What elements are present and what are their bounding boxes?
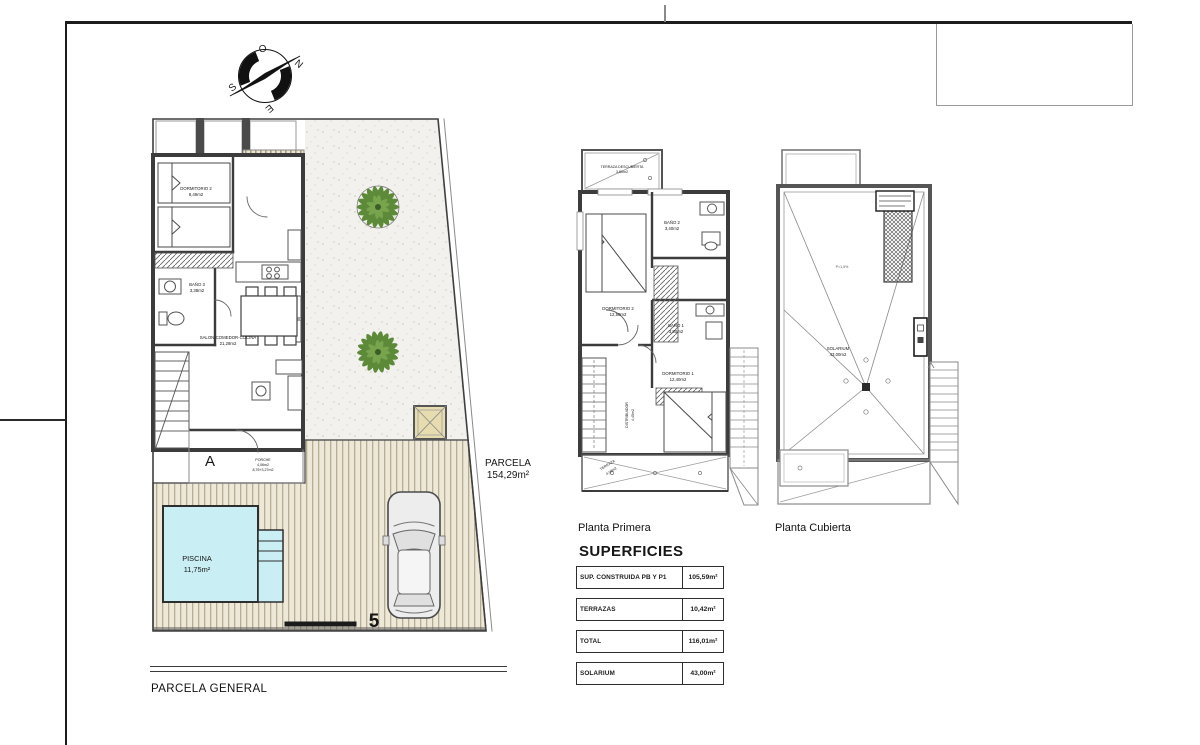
ground-floor-plan: DORMITORIO 2 8,49m2 BAÑO 3 3,38m2 SALON-… [153, 118, 531, 632]
room-area: 21,28m2 [220, 341, 237, 346]
pool-steps [258, 530, 283, 602]
superficies-row: SUP. CONSTRUIDA PB Y P1 105,59m² [576, 566, 724, 589]
room-label: BAÑO 3 [189, 282, 205, 287]
room-area: 43,00m2 [830, 352, 847, 357]
superficies-row-label: TOTAL [577, 631, 683, 652]
room-label: DORMITORIO 2 [602, 306, 634, 311]
compass-west-label: O [258, 43, 269, 56]
planta-primera-caption: Planta Primera [578, 522, 651, 534]
superficies-row-value: 116,01m² [683, 631, 723, 652]
parcela-general-caption: PARCELA GENERAL [151, 683, 267, 695]
compass-rose: O N S E [227, 43, 305, 115]
parcela-divider-line [150, 666, 507, 672]
street-terrace-slots [156, 121, 296, 154]
room-area: 8,49m2 [189, 192, 204, 197]
compass-east-label: E [263, 102, 275, 115]
p1-terraza [582, 455, 728, 491]
superficies-row-value: 10,42m² [683, 599, 723, 620]
room-label: DORMITORIO 1 [662, 371, 694, 376]
superficies-row: TOTAL 116,01m² [576, 630, 724, 653]
room-area: 4,06m2 [257, 463, 269, 467]
architectural-drawing-sheet: O N S E [0, 0, 1200, 745]
room-label: DORMITORIO 2 [180, 186, 212, 191]
superficies-row-label: TERRAZAS [577, 599, 683, 620]
superficies-row-label: SOLARIUM [577, 663, 683, 684]
parcela-label: PARCELA [485, 458, 531, 469]
room-label: TERRAZA DESCUBIERTA [601, 165, 644, 169]
room-area: 3,60m2 [616, 170, 628, 174]
room-label: PORCHE [255, 458, 271, 462]
roof-side-stair [928, 362, 958, 504]
roof-slope-note: P=1,5% [836, 265, 849, 269]
room-area-detail: 8,76+3,27m2 [252, 468, 273, 472]
room-area: 4,45m2 [631, 409, 635, 421]
superficies-row-label: SUP. CONSTRUIDA PB Y P1 [577, 567, 683, 588]
room-area: 3,40m2 [665, 226, 680, 231]
stairs-ground [155, 352, 189, 448]
superficies-title: SUPERFICIES [579, 543, 683, 560]
planta-primera-plan: TERRAZA DESCUBIERTA 3,60m2 DORMITORIO 2 … [577, 150, 758, 505]
p1-stairs [582, 358, 606, 452]
room-label: BAÑO 1 [668, 323, 684, 328]
superficies-row-value: 43,00m² [683, 663, 723, 684]
room-label: SOLARIUM [827, 346, 850, 351]
superficies-row: TERRAZAS 10,42m² [576, 598, 724, 621]
house-number: 5 [369, 611, 380, 632]
p1-side-stair [730, 348, 758, 505]
room-label: BAÑO 2 [664, 220, 680, 225]
room-area: 12,50m2 [610, 312, 627, 317]
parked-car [383, 492, 445, 618]
superficies-row: SOLARIUM 43,00m² [576, 662, 724, 685]
planta-cubierta-plan: SOLARIUM 43,00m2 P=1,5% [778, 150, 958, 504]
pool-label: PISCINA [182, 554, 212, 563]
wardrobe-hatch [155, 253, 233, 268]
superficies-row-value: 105,59m² [683, 567, 723, 588]
roof-equipment-unit [914, 318, 927, 356]
outdoor-tray [414, 406, 446, 439]
section-marker-a: A [205, 453, 215, 470]
roof-drain [862, 383, 870, 391]
parcela-area: 154,29m² [487, 470, 530, 481]
room-area: 12,40m2 [670, 377, 687, 382]
room-area: 3,80m2 [669, 329, 684, 334]
pool-area: 11,75m² [184, 565, 211, 574]
room-label: DISTRIBUIDOR [625, 402, 629, 428]
room-area: 3,38m2 [190, 288, 205, 293]
garden-area [305, 119, 468, 443]
roof-terrace-box [782, 150, 860, 186]
room-label: SALON-COMEDOR-COCINA [200, 335, 257, 340]
planta-cubierta-caption: Planta Cubierta [775, 522, 851, 534]
